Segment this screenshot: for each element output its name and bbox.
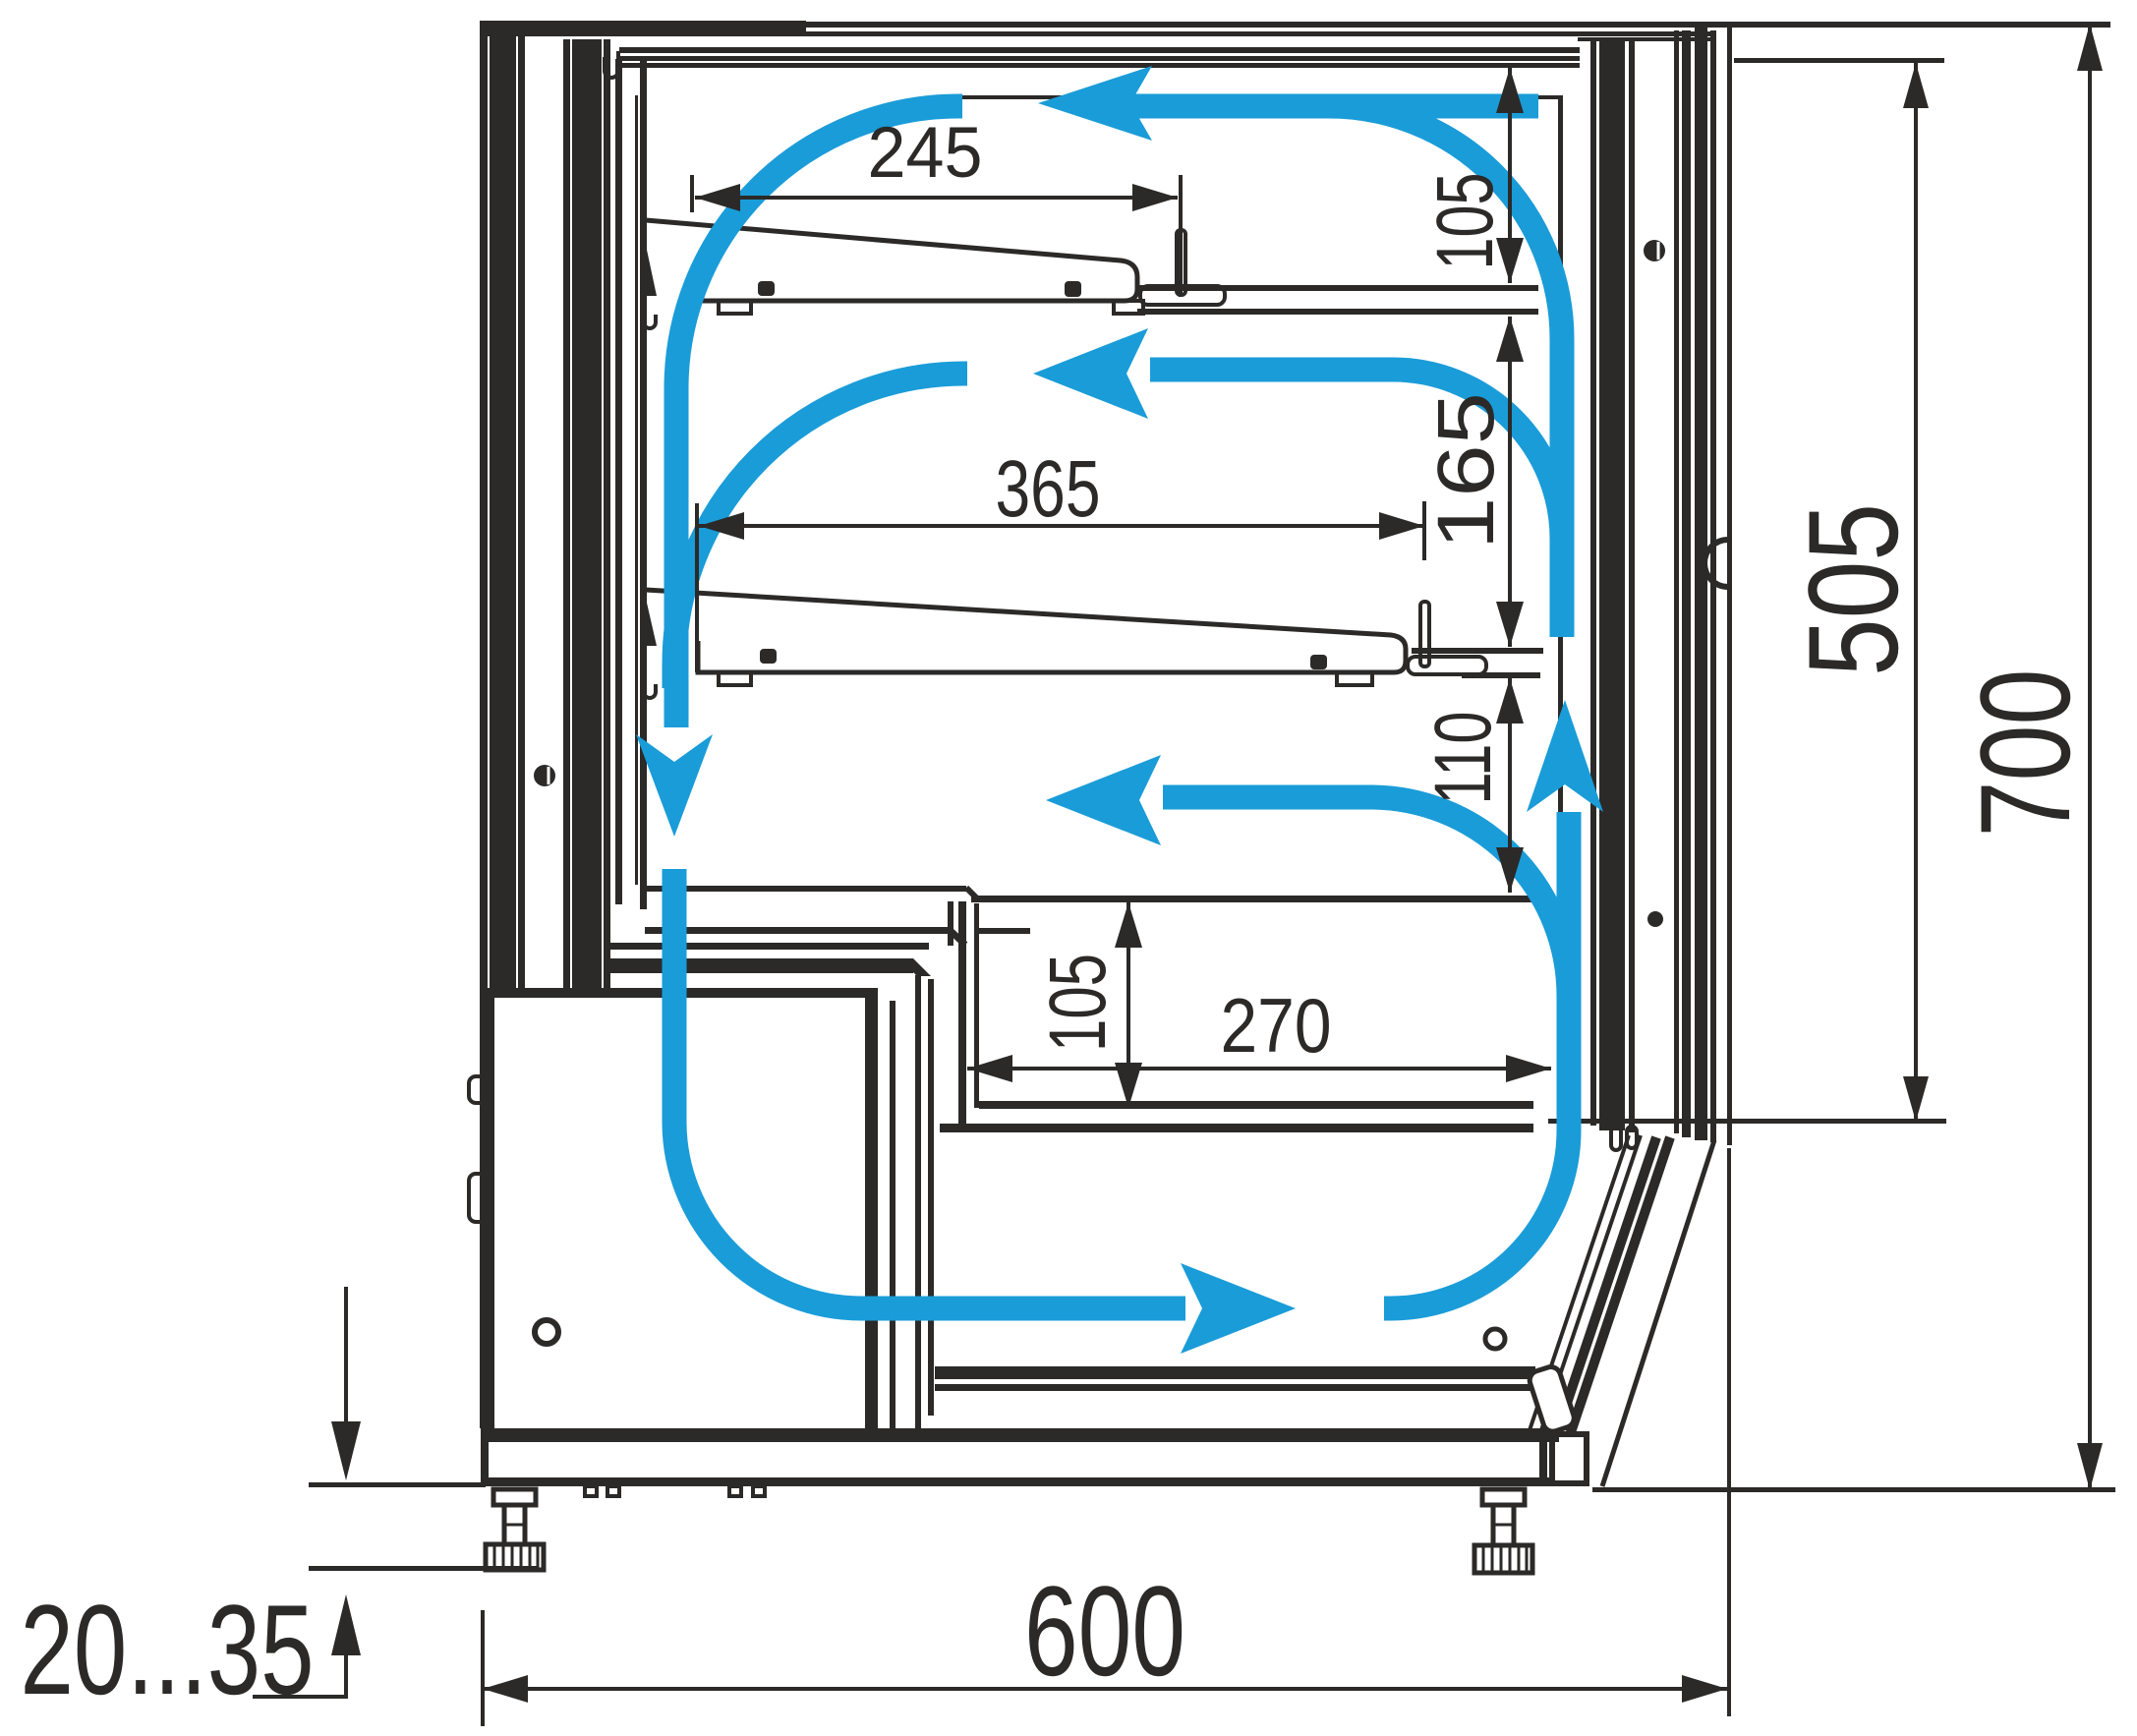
svg-text:505: 505: [1781, 503, 1925, 676]
svg-text:700: 700: [1953, 669, 2097, 838]
svg-text:105: 105: [1033, 954, 1123, 1052]
svg-text:270: 270: [1221, 982, 1332, 1069]
svg-text:245: 245: [868, 113, 983, 193]
svg-text:165: 165: [1421, 392, 1511, 550]
svg-text:110: 110: [1418, 712, 1508, 805]
svg-text:105: 105: [1420, 173, 1510, 270]
svg-text:600: 600: [1024, 1559, 1185, 1703]
svg-text:365: 365: [996, 444, 1101, 534]
svg-text:20...35: 20...35: [21, 1578, 315, 1721]
